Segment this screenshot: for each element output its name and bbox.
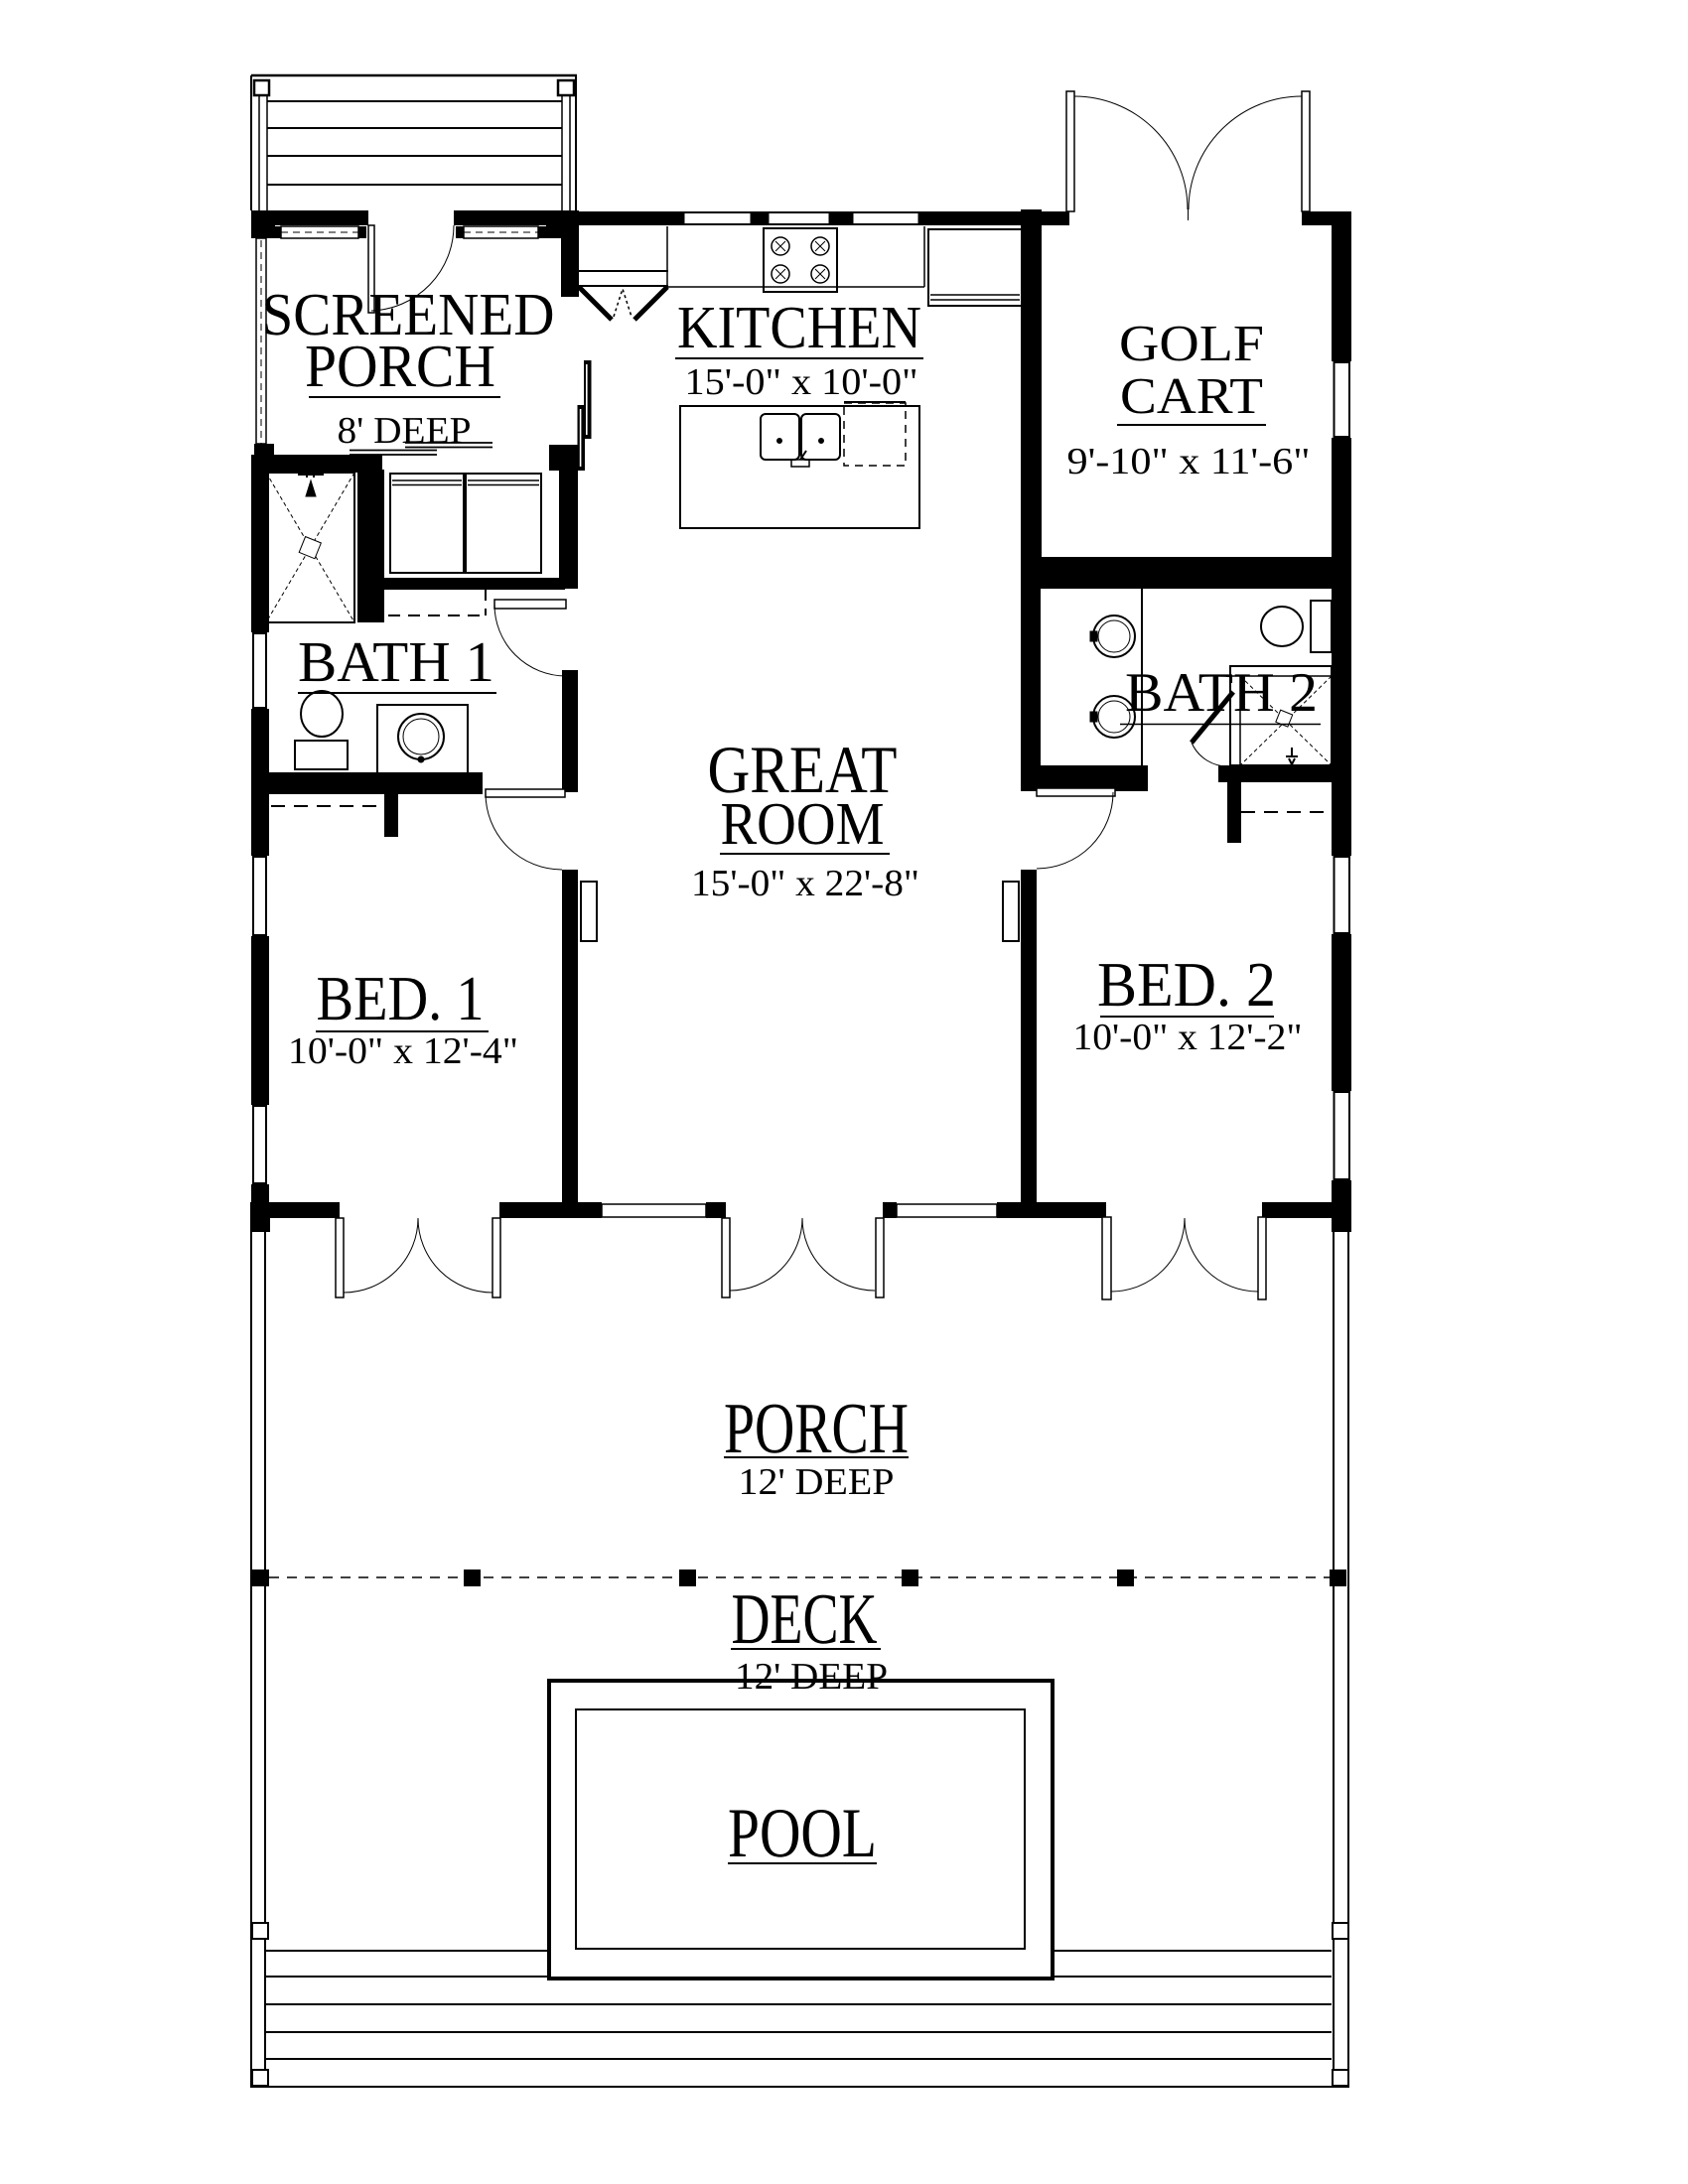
svg-text:PORCH: PORCH [724, 1388, 909, 1468]
svg-text:12' DEEP: 12' DEEP [735, 1656, 888, 1698]
svg-text:BED. 1: BED. 1 [317, 963, 485, 1033]
svg-text:BATH 2: BATH 2 [1125, 662, 1318, 724]
svg-text:DECK: DECK [732, 1578, 878, 1659]
svg-text:ROOM: ROOM [721, 791, 885, 858]
svg-text:POOL: POOL [728, 1795, 877, 1872]
svg-text:BATH 1: BATH 1 [298, 629, 494, 694]
svg-text:12' DEEP: 12' DEEP [739, 1461, 895, 1503]
svg-text:10'-0" x 12'-4": 10'-0" x 12'-4" [288, 1030, 518, 1072]
svg-text:GOLF: GOLF [1119, 316, 1264, 372]
svg-text:9'-10" x 11'-6": 9'-10" x 11'-6" [1067, 441, 1311, 482]
svg-text:CART: CART [1120, 368, 1263, 425]
svg-text:BED. 2: BED. 2 [1097, 949, 1276, 1020]
svg-text:15'-0" x 22'-8": 15'-0" x 22'-8" [691, 863, 919, 904]
svg-text:PORCH: PORCH [305, 334, 495, 400]
svg-text:10'-0" x 12'-2": 10'-0" x 12'-2" [1073, 1017, 1303, 1058]
svg-text:8' DEEP: 8' DEEP [338, 410, 472, 452]
svg-text:15'-0" x 10'-0": 15'-0" x 10'-0" [685, 361, 918, 403]
svg-text:KITCHEN: KITCHEN [677, 295, 921, 361]
